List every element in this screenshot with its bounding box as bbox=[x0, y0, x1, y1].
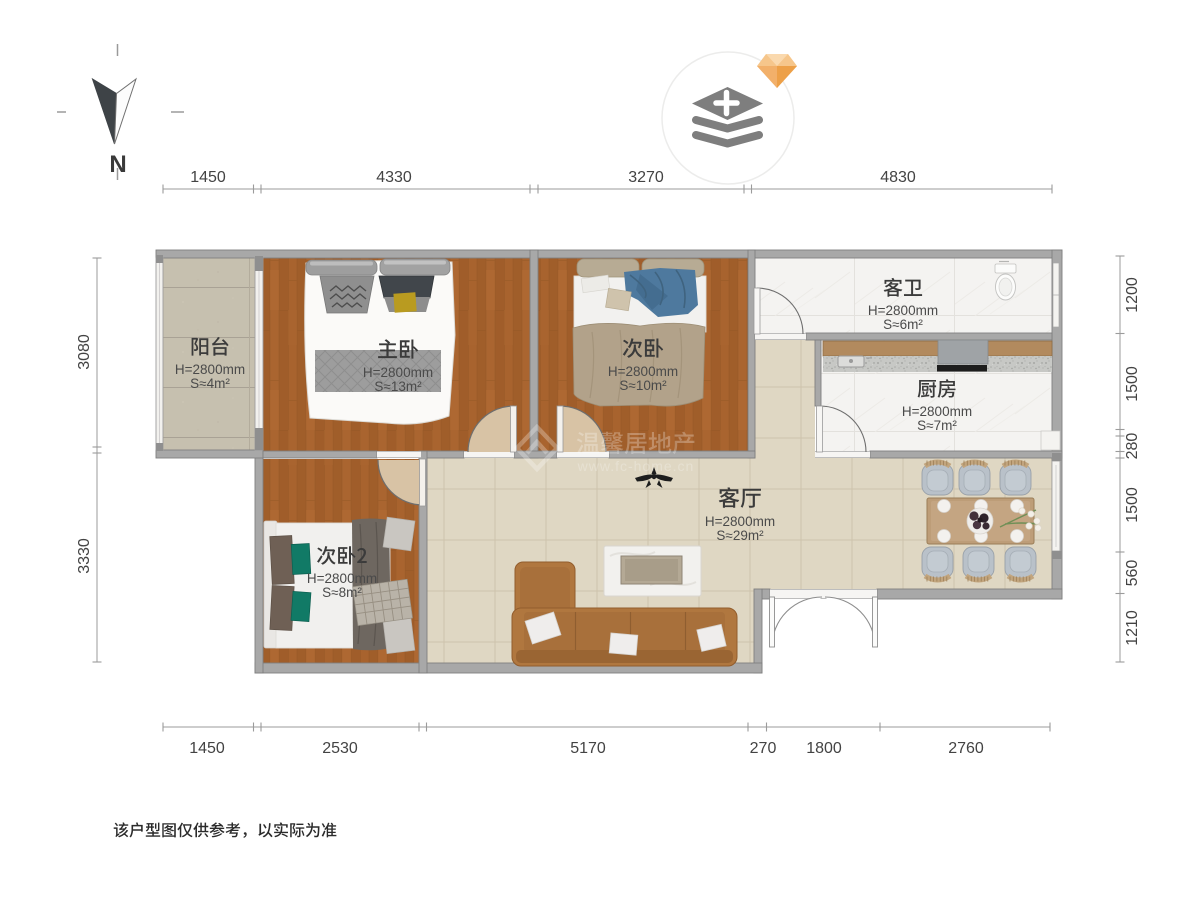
svg-text:5170: 5170 bbox=[570, 740, 606, 757]
svg-text:H=2800mm: H=2800mm bbox=[608, 364, 678, 379]
svg-text:H=2800mm: H=2800mm bbox=[868, 303, 938, 318]
svg-text:1800: 1800 bbox=[806, 740, 842, 757]
svg-text:4330: 4330 bbox=[376, 169, 412, 186]
svg-text:H=2800mm: H=2800mm bbox=[175, 362, 245, 377]
svg-text:1450: 1450 bbox=[189, 740, 225, 757]
svg-text:4830: 4830 bbox=[880, 169, 916, 186]
svg-text:S≈7m²: S≈7m² bbox=[917, 418, 957, 433]
svg-text:H=2800mm: H=2800mm bbox=[363, 365, 433, 380]
svg-text:3330: 3330 bbox=[76, 538, 93, 574]
svg-text:1450: 1450 bbox=[190, 169, 226, 186]
svg-text:S≈29m²: S≈29m² bbox=[716, 528, 764, 543]
svg-text:S≈10m²: S≈10m² bbox=[619, 378, 667, 393]
svg-text:H=2800mm: H=2800mm bbox=[902, 404, 972, 419]
svg-text:1500: 1500 bbox=[1124, 487, 1141, 523]
svg-text:3270: 3270 bbox=[628, 169, 664, 186]
svg-text:H=2800mm: H=2800mm bbox=[307, 571, 377, 586]
svg-text:1500: 1500 bbox=[1124, 366, 1141, 402]
svg-text:270: 270 bbox=[750, 740, 777, 757]
svg-text:N: N bbox=[109, 151, 126, 178]
svg-text:S≈6m²: S≈6m² bbox=[883, 317, 923, 332]
svg-text:H=2800mm: H=2800mm bbox=[705, 514, 775, 529]
svg-text:S≈13m²: S≈13m² bbox=[374, 379, 422, 394]
svg-text:560: 560 bbox=[1124, 560, 1141, 587]
svg-text:www.fc-home.cn: www.fc-home.cn bbox=[577, 458, 695, 474]
svg-text:1210: 1210 bbox=[1124, 610, 1141, 646]
svg-text:S≈4m²: S≈4m² bbox=[190, 376, 230, 391]
svg-text:280: 280 bbox=[1124, 433, 1141, 460]
svg-text:2530: 2530 bbox=[322, 740, 358, 757]
svg-text:1200: 1200 bbox=[1124, 277, 1141, 313]
svg-text:3080: 3080 bbox=[76, 334, 93, 370]
svg-text:S≈8m²: S≈8m² bbox=[322, 585, 362, 600]
svg-text:2760: 2760 bbox=[948, 740, 984, 757]
